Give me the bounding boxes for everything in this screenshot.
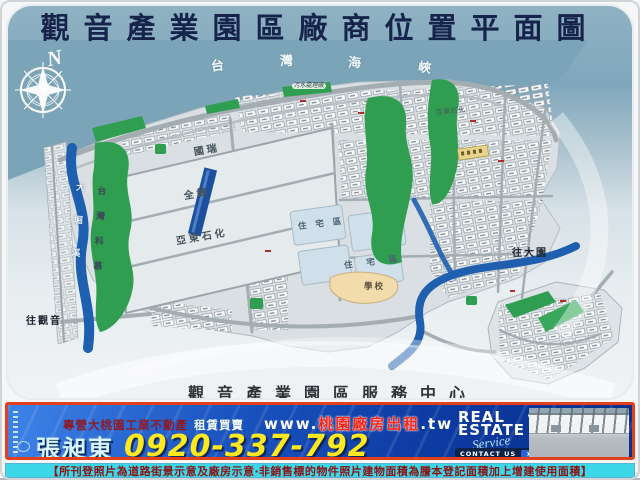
industrial-park-map-card: 觀音產業園區廠商位置平面圖 N 台 灣 海 峽 污水處理廠 國瑞 全鋒 亞東石化… [8, 6, 632, 398]
sea-label-char: 台 [210, 59, 225, 74]
factory-door-decor [551, 425, 561, 433]
sea-label-char: 峽 [417, 61, 432, 76]
factory-door-decor [589, 425, 599, 433]
direction-to-dayuan: 往大園 [512, 249, 548, 259]
sea-label-char: 灣 [280, 55, 294, 69]
direction-to-guanyin: 往觀音 [26, 317, 62, 327]
phone-number[interactable]: 0920-337-792 [124, 429, 370, 460]
map-title: 觀音產業園區廠商位置平面圖 [8, 14, 632, 43]
school-label: 學校 [364, 283, 385, 292]
service-center-caption: 觀音產業園區服務中心 [168, 386, 498, 398]
contact-us-label: CONTACT US [455, 450, 521, 458]
contact-us-button[interactable]: CONTACT US ➤ [455, 448, 539, 460]
truss-decor [529, 413, 629, 415]
disclaimer-text: 【所刊登照片為道路街景示意及廠房示意‧非銷售標的物件照片建物面積為謄本登記面積加… [48, 463, 593, 479]
website-tld: .tw [420, 415, 453, 433]
realtor-ad-banner[interactable]: 專營大桃園工業不動產 租賃買賣 www.桃園廠房出租.tw 張昶東 0920-3… [5, 402, 635, 460]
floor-line-decor [529, 433, 629, 434]
banner-contact-row: 張昶東 0920-337-792 [36, 429, 370, 460]
agent-name: 張昶東 [36, 429, 114, 460]
factory-interior-photo [529, 408, 629, 457]
ceiling-beams-decor [529, 408, 629, 433]
map-stage: 觀音產業園區廠商位置平面圖 N 台 灣 海 峽 污水處理廠 國瑞 全鋒 亞東石化… [8, 6, 632, 398]
real-estate-logo: REAL ESTATE Service [458, 411, 536, 449]
sea-label-char: 海 [348, 57, 362, 71]
sewage-plant-label: 污水處理廠 [292, 83, 326, 89]
banner-circle-decor [17, 441, 30, 452]
disclaimer-bar: 【所刊登照片為道路街景示意及廠房示意‧非銷售標的物件照片建物面積為謄本登記面積加… [5, 463, 635, 478]
